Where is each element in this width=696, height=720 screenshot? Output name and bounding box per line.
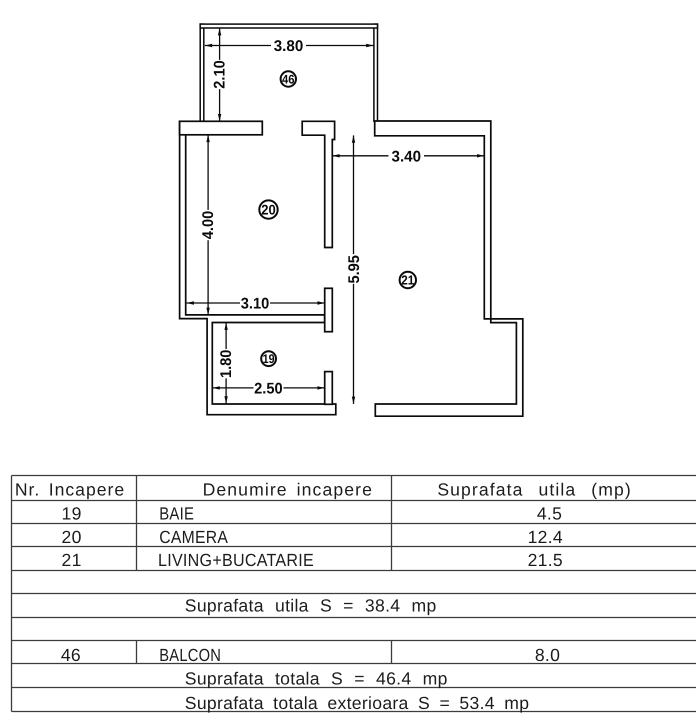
- svg-text:Nr. Incapere: Nr. Incapere: [15, 479, 125, 499]
- svg-text:19: 19: [62, 504, 82, 524]
- svg-text:20: 20: [62, 527, 82, 547]
- svg-text:Suprafata totala exterioara S: Suprafata totala exterioara S = 53.4 mp: [185, 693, 530, 713]
- svg-text:3.80: 3.80: [274, 38, 304, 55]
- svg-text:CAMERA: CAMERA: [159, 527, 228, 547]
- svg-text:3.40: 3.40: [392, 148, 422, 165]
- svg-text:Suprafata utila (mp): Suprafata utila (mp): [437, 479, 632, 499]
- svg-text:BAIE: BAIE: [159, 504, 194, 524]
- svg-text:46: 46: [61, 645, 81, 665]
- svg-text:12.4: 12.4: [528, 527, 563, 547]
- svg-text:1.80: 1.80: [218, 350, 235, 379]
- svg-text:5.95: 5.95: [346, 255, 363, 284]
- svg-text:2.10: 2.10: [212, 60, 229, 89]
- svg-text:21: 21: [62, 550, 82, 570]
- svg-text:20: 20: [261, 202, 276, 218]
- svg-text:4.00: 4.00: [200, 211, 217, 240]
- svg-text:21: 21: [401, 273, 414, 288]
- svg-text:Suprafata totala S = 46.4 mp: Suprafata totala S = 46.4 mp: [185, 669, 448, 689]
- svg-text:21.5: 21.5: [528, 550, 563, 570]
- svg-text:2.50: 2.50: [254, 380, 283, 397]
- svg-text:3.10: 3.10: [241, 296, 270, 313]
- svg-text:Denumire incapere: Denumire incapere: [203, 479, 373, 499]
- svg-text:Suprafata utila S = 38.4 mp: Suprafata utila S = 38.4 mp: [185, 596, 437, 616]
- svg-text:4.5: 4.5: [537, 504, 562, 524]
- svg-text:LIVING+BUCATARIE: LIVING+BUCATARIE: [158, 550, 314, 570]
- svg-text:46: 46: [282, 73, 295, 87]
- svg-text:19: 19: [263, 352, 275, 366]
- svg-text:8.0: 8.0: [535, 645, 560, 665]
- svg-text:BALCON: BALCON: [159, 645, 221, 665]
